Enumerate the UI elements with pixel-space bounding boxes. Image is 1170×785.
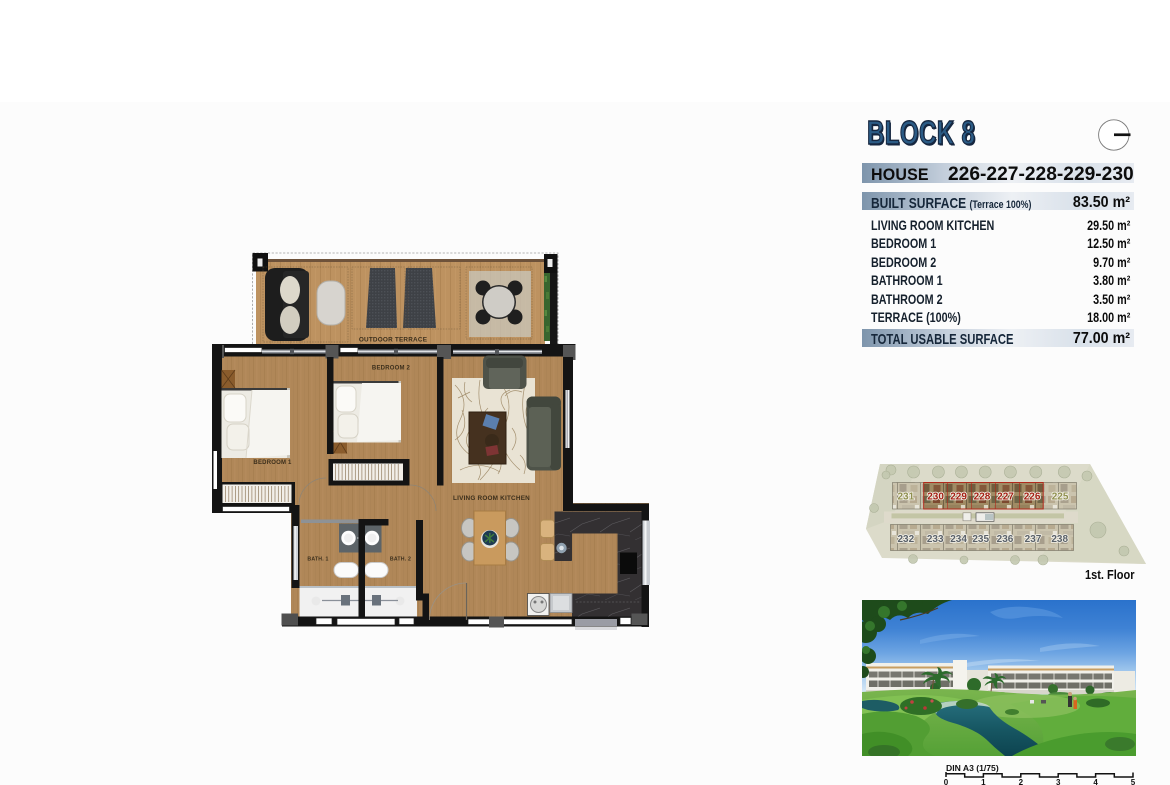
svg-text:DIN A3 (1/75): DIN A3 (1/75) [946, 763, 999, 773]
svg-text:232: 232 [897, 534, 914, 545]
svg-text:3: 3 [1056, 778, 1061, 785]
svg-text:BEDROOM 1: BEDROOM 1 [253, 460, 292, 466]
svg-text:234: 234 [950, 534, 967, 545]
svg-text:228: 228 [974, 492, 991, 503]
svg-text:0: 0 [944, 778, 949, 785]
svg-text:OUTDOOR TERRACE: OUTDOOR TERRACE [359, 337, 428, 344]
svg-text:5: 5 [1131, 778, 1136, 785]
svg-text:LIVING ROOM KITCHEN: LIVING ROOM KITCHEN [453, 495, 530, 502]
svg-text:233: 233 [927, 534, 944, 545]
svg-text:226: 226 [1024, 492, 1041, 503]
svg-text:BEDROOM 2: BEDROOM 2 [372, 366, 411, 372]
svg-text:BATH. 2: BATH. 2 [390, 556, 411, 562]
svg-text:237: 237 [1025, 534, 1042, 545]
svg-text:227: 227 [997, 492, 1014, 503]
svg-text:236: 236 [997, 534, 1014, 545]
svg-text:229: 229 [950, 492, 967, 503]
svg-text:1: 1 [981, 778, 986, 785]
svg-text:2: 2 [1019, 778, 1024, 785]
svg-text:235: 235 [972, 534, 989, 545]
svg-text:225: 225 [1052, 492, 1069, 503]
svg-text:BATH. 1: BATH. 1 [307, 556, 328, 562]
svg-text:238: 238 [1051, 534, 1068, 545]
svg-text:231: 231 [897, 492, 914, 503]
svg-text:4: 4 [1093, 778, 1098, 785]
svg-text:230: 230 [927, 492, 944, 503]
